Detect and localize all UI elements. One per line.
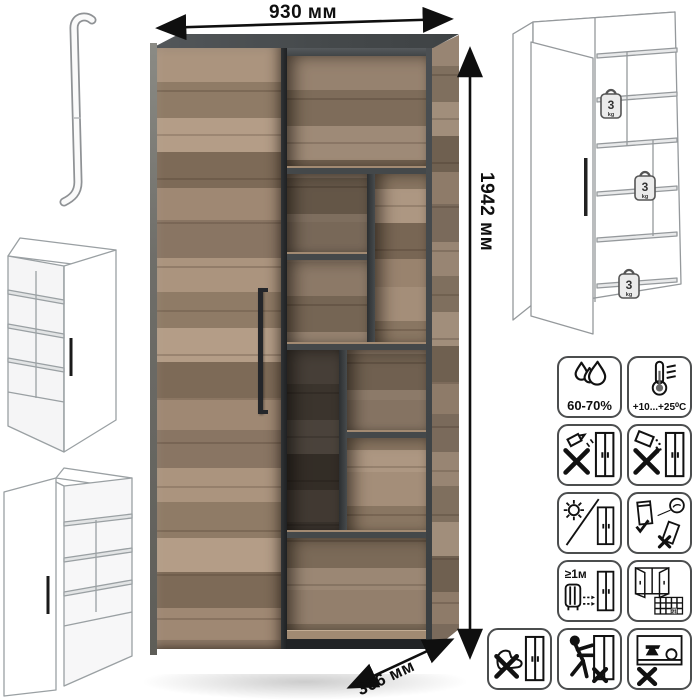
svg-text:kg: kg xyxy=(626,292,632,298)
no-shoe-icon xyxy=(491,632,548,686)
care-icon-temperature: +10...+25⁰C xyxy=(627,356,692,418)
care-icon-no-sunlight xyxy=(557,492,622,554)
shelf-compartment xyxy=(287,260,367,342)
care-icon-no-standing xyxy=(487,628,552,690)
height-dimension-label: 1942 мм xyxy=(475,172,497,332)
shelf-board xyxy=(287,252,367,260)
vertical-divider xyxy=(339,350,347,530)
open-window-calendar-icon: 21 xyxy=(631,564,688,618)
svg-text:3: 3 xyxy=(626,278,633,292)
no-liquids-icon xyxy=(561,428,618,482)
min-distance-label: ≥1м xyxy=(565,567,587,581)
shelf-board xyxy=(287,166,426,174)
thermometer-icon xyxy=(631,360,688,396)
care-icon-anti-tip xyxy=(627,492,692,554)
no-abrasive-powder-icon xyxy=(631,428,688,482)
ventilation-days-label: 21 xyxy=(671,609,677,615)
no-pushing-person-icon xyxy=(561,632,618,686)
cabinet-shelving xyxy=(287,48,432,649)
shelf-load-weight: 3 kg xyxy=(619,270,639,298)
wireframe-shelf-load-diagram: 3 kg 3 kg 3 kg xyxy=(505,8,694,338)
svg-text:kg: kg xyxy=(642,194,648,200)
care-icon-no-liquids xyxy=(557,424,622,486)
shelf-load-weight: 3 kg xyxy=(601,90,621,118)
cabinet-side-panel xyxy=(431,32,460,654)
shelving-frame xyxy=(287,48,432,56)
shelf-compartment xyxy=(287,174,367,252)
care-icon-no-pushing xyxy=(557,628,622,690)
wireframe-view-closed-door xyxy=(2,228,128,460)
wireframe-door-handle xyxy=(584,158,588,216)
shelf-board xyxy=(287,342,426,350)
base-recess xyxy=(287,639,426,649)
svg-text:3: 3 xyxy=(608,98,615,112)
svg-text:3: 3 xyxy=(642,180,649,194)
bottom-shelf-edge xyxy=(287,630,426,639)
no-direct-sunlight-icon xyxy=(561,496,618,550)
shelf-board xyxy=(287,530,426,538)
shelf-load-weight: 3 kg xyxy=(635,172,655,200)
temperature-label: +10...+25⁰C xyxy=(629,402,690,413)
shelf-compartment xyxy=(287,538,426,630)
floor-shadow xyxy=(140,674,470,700)
secure-anti-tip-icon xyxy=(631,496,688,550)
water-drops-icon xyxy=(561,360,618,394)
vertical-divider xyxy=(367,174,375,342)
care-icon-heat-distance: ≥1м xyxy=(557,560,622,622)
width-dimension-label: 930 мм xyxy=(228,2,378,24)
min-distance-heater-icon: ≥1м xyxy=(561,564,618,618)
care-icon-humidity: 60-70% xyxy=(557,356,622,418)
no-overload-anvil-icon xyxy=(631,632,688,686)
shelving-frame xyxy=(426,48,432,649)
shelf-compartment xyxy=(287,56,426,166)
handle-line-drawing xyxy=(28,6,113,224)
wireframe-view-open-door xyxy=(0,460,140,700)
svg-text:kg: kg xyxy=(608,112,614,118)
shelf-compartment xyxy=(347,350,426,430)
shelf-compartment xyxy=(347,438,426,530)
cabinet-photo xyxy=(150,32,462,682)
care-icon-no-overload xyxy=(627,628,692,690)
shelf-compartment xyxy=(287,350,339,530)
shelf-compartment xyxy=(375,174,426,342)
product-image: 930 мм 1942 мм 366 мм 3 kg xyxy=(0,0,694,700)
care-icon-no-abrasives xyxy=(627,424,692,486)
cabinet-left-edge xyxy=(150,43,157,655)
care-icon-ventilation: 21 xyxy=(627,560,692,622)
shelf-board xyxy=(347,430,426,438)
cabinet-door xyxy=(157,48,281,649)
door-handle xyxy=(258,288,263,414)
humidity-label: 60-70% xyxy=(559,398,620,413)
